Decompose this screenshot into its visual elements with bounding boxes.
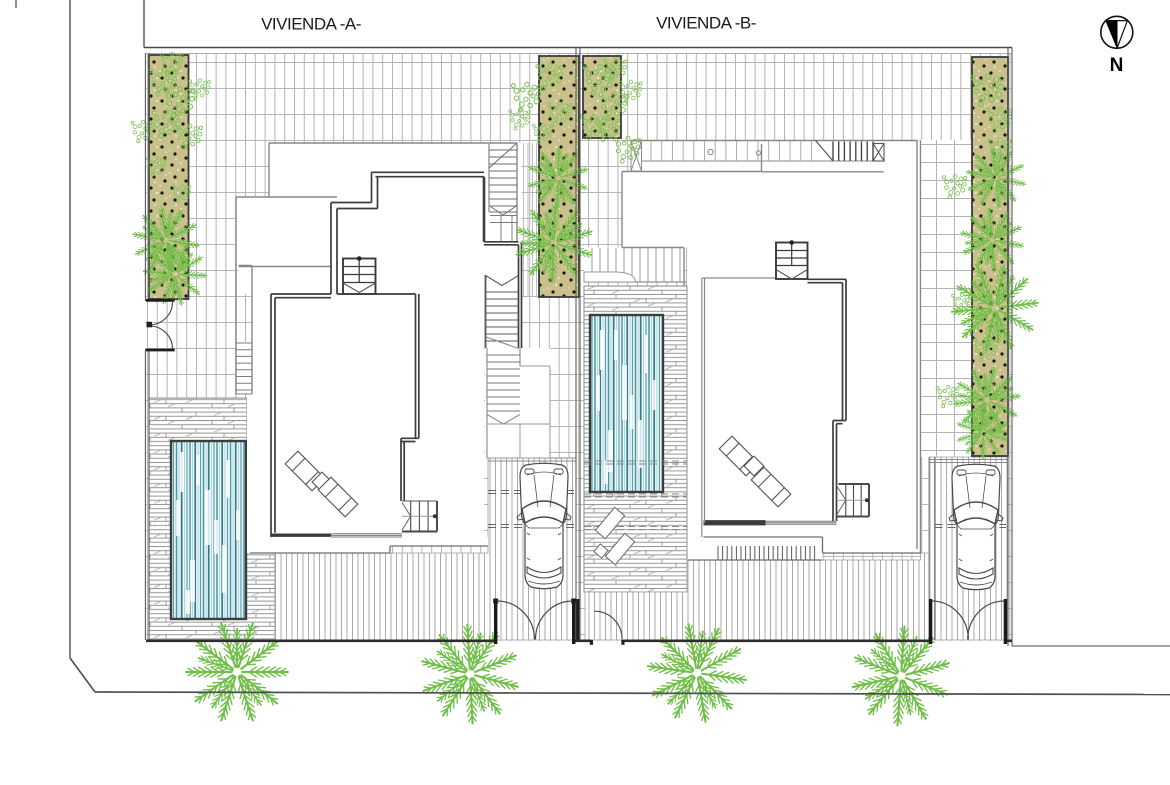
svg-text:N: N: [1110, 55, 1124, 76]
svg-text:VIVIENDA -A-: VIVIENDA -A-: [261, 15, 361, 34]
svg-text:VIVIENDA -B-: VIVIENDA -B-: [656, 14, 756, 33]
